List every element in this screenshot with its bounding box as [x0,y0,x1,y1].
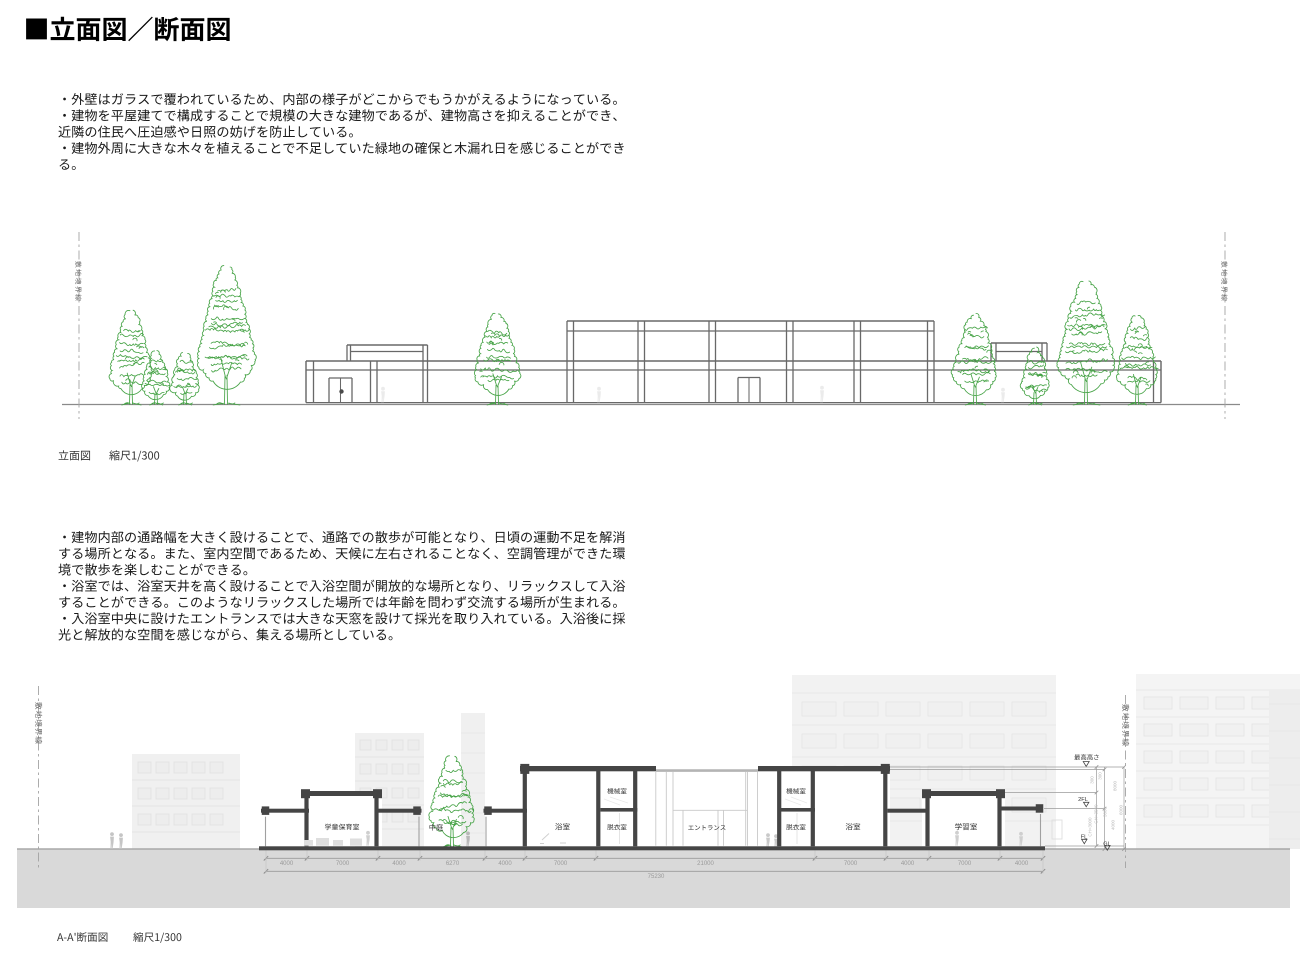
svg-text:4000: 4000 [901,861,915,867]
svg-text:4000: 4000 [1111,819,1116,830]
svg-text:6270: 6270 [446,861,460,867]
svg-text:75230: 75230 [648,874,665,880]
svg-text:8000: 8000 [1113,780,1118,791]
svg-text:4000: 4000 [280,861,294,867]
svg-text:6000: 6000 [1119,804,1124,815]
svg-text:7000: 7000 [336,861,350,867]
svg-text:21000: 21000 [697,861,714,867]
svg-text:7000: 7000 [958,861,972,867]
svg-text:CH=3000: CH=3000 [1088,817,1093,837]
svg-text:300: 300 [1098,772,1103,780]
svg-text:300: 300 [1090,776,1095,784]
svg-text:4000: 4000 [392,861,406,867]
svg-text:7000: 7000 [844,861,858,867]
svg-text:3000: 3000 [1103,806,1108,817]
svg-text:7000: 7000 [554,861,568,867]
svg-text:CH=3500: CH=3500 [1094,804,1099,824]
svg-text:4000: 4000 [498,861,512,867]
svg-text:4000: 4000 [1015,861,1029,867]
